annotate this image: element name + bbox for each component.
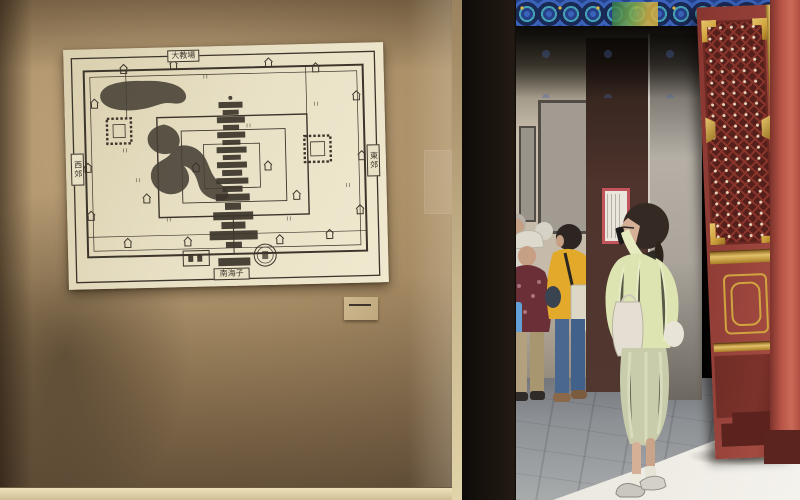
display-case-edge [452,0,462,500]
map-label-east: 東郊 [367,144,381,176]
door-jamb-foot [764,430,800,464]
map-label-bottom: 南海子 [213,267,249,280]
antique-map-print: 大教場 西郊 東郊 南海子 [63,42,389,290]
tote-bag [612,302,643,356]
map-drawing [63,42,389,290]
painted-beam-bracket [612,2,658,27]
door-gold-band [710,249,776,265]
door-gold-medallion [723,273,769,335]
map-label-west: 西郊 [71,153,85,185]
exhibit-caption-card [344,297,378,320]
display-case-frame-pillar [462,0,516,500]
caption-text-line [349,304,371,306]
background-picture-frame-small [519,126,536,222]
map-label-top: 大教場 [167,50,199,63]
display-case-ledge [0,487,462,500]
glass-reflection-frame [424,150,452,214]
medallion-inner-scroll [730,281,762,326]
museum-photo: 大教場 西郊 東郊 南海子 [0,0,800,500]
red-door-jamb [770,0,800,462]
woman-on-phone [588,198,698,498]
